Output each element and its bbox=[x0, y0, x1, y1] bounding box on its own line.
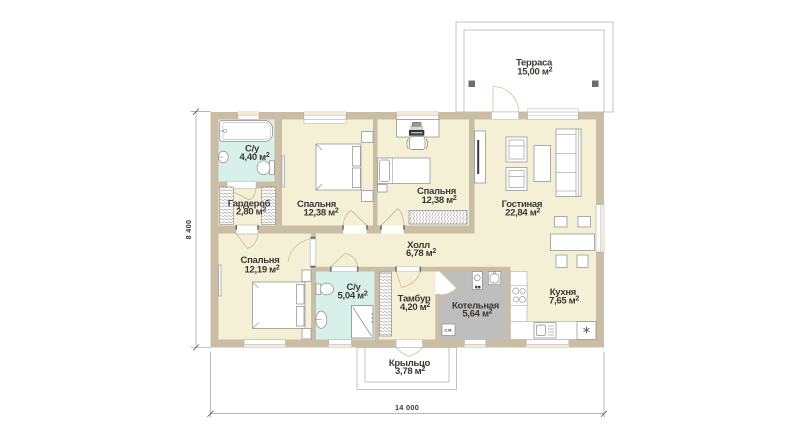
svg-text:12,38 м2: 12,38 м2 bbox=[422, 195, 457, 206]
svg-text:2,80 м2: 2,80 м2 bbox=[236, 207, 266, 218]
svg-text:7,65 м2: 7,65 м2 bbox=[549, 295, 579, 306]
svg-text:14 000: 14 000 bbox=[395, 403, 419, 412]
svg-text:8 400: 8 400 bbox=[184, 220, 193, 240]
svg-text:22,84 м2: 22,84 м2 bbox=[505, 208, 540, 219]
svg-text:12,19 м2: 12,19 м2 bbox=[245, 264, 280, 275]
svg-text:5,04 м2: 5,04 м2 bbox=[338, 291, 368, 302]
svg-text:5,64 м2: 5,64 м2 bbox=[462, 309, 492, 320]
svg-text:12,38 м2: 12,38 м2 bbox=[304, 208, 339, 219]
svg-text:6,78 м2: 6,78 м2 bbox=[406, 248, 436, 259]
svg-text:4,20 м2: 4,20 м2 bbox=[400, 302, 430, 313]
svg-text:15,00 м2: 15,00 м2 bbox=[517, 67, 552, 78]
svg-text:3,78 м2: 3,78 м2 bbox=[395, 366, 425, 377]
svg-text:4,40 м2: 4,40 м2 bbox=[240, 152, 270, 163]
svg-text:С.М.: С.М. bbox=[444, 329, 452, 333]
